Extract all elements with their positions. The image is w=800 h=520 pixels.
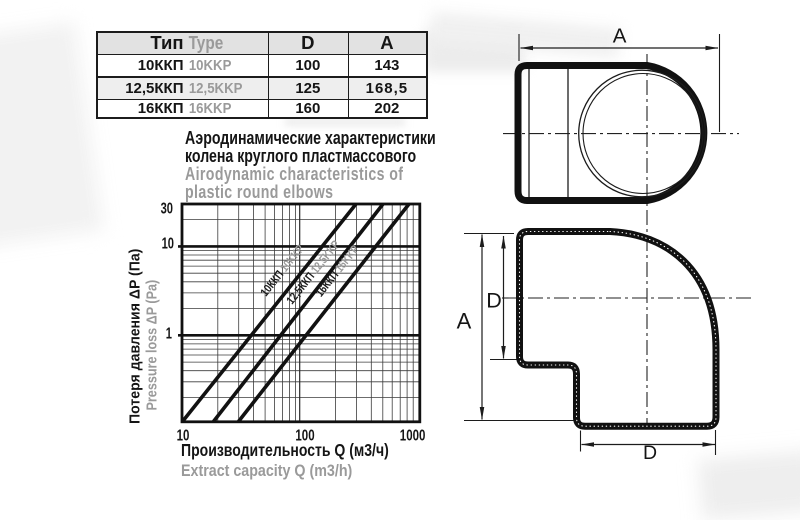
svg-text:A: A (457, 309, 472, 334)
svg-text:Потеря давления ΔP (Па): Потеря давления ΔP (Па) (127, 248, 143, 424)
svg-text:30: 30 (161, 200, 173, 217)
svg-text:10: 10 (162, 235, 174, 252)
svg-text:A: A (613, 25, 627, 48)
svg-text:Extract capacity Q (m3/h): Extract capacity Q (m3/h) (181, 462, 352, 480)
svg-text:D: D (643, 442, 657, 464)
svg-text:1000: 1000 (400, 426, 426, 444)
svg-text:1: 1 (166, 325, 173, 342)
svg-text:D: D (486, 289, 502, 313)
svg-text:Производительность Q (м3/ч): Производительность Q (м3/ч) (181, 440, 389, 460)
svg-text:Pressure loss ΔP (Pa): Pressure loss ΔP (Pa) (144, 280, 160, 411)
